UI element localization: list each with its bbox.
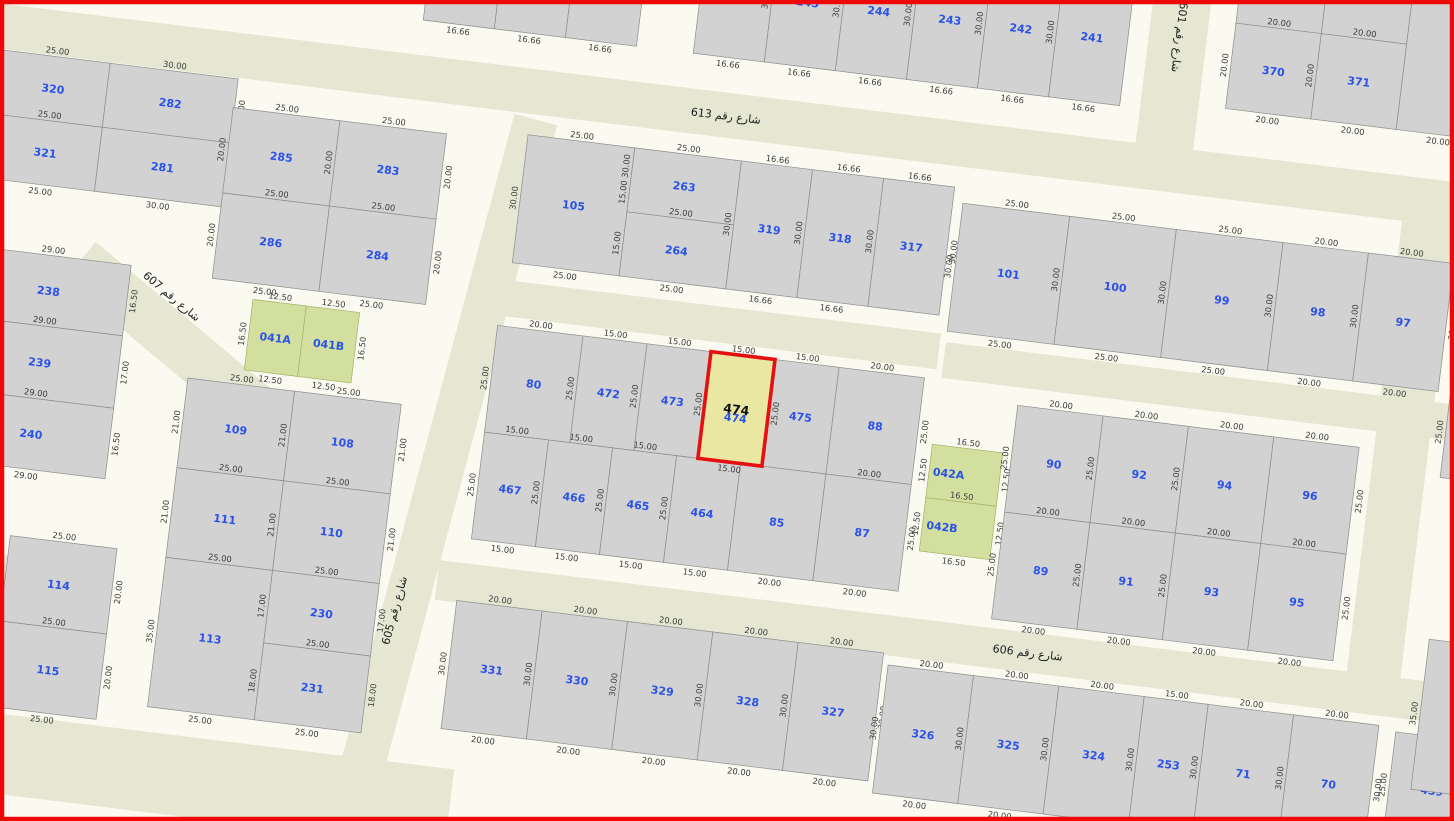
- parcel-number: 281: [150, 160, 174, 176]
- parcel-number: 71: [1235, 767, 1252, 782]
- parcel-number: 319: [757, 222, 781, 238]
- parcel-number: 113: [198, 631, 222, 647]
- parcel-number: 88: [867, 419, 884, 434]
- parcel-number: 92: [1131, 468, 1148, 483]
- parcel-number: 325: [996, 737, 1020, 753]
- parcel-number: 329: [650, 683, 674, 699]
- parcel-number: 253: [1156, 757, 1180, 773]
- parcel-number: 318: [828, 231, 852, 247]
- parcel-number: 98: [1309, 305, 1326, 320]
- parcel-number: 467: [498, 482, 522, 498]
- parcel-number: 239: [27, 355, 51, 371]
- parcel-map[interactable]: 32025.0015.0028230.0015.0032125.0025.001…: [0, 0, 1454, 821]
- parcel-number: 465: [626, 498, 650, 514]
- parcel-number: 87: [854, 526, 871, 541]
- parcel-number: 105: [561, 198, 585, 214]
- parcel-number: 283: [376, 163, 400, 179]
- parcel-number: 475: [788, 409, 812, 425]
- parcel-number: 317: [899, 239, 923, 255]
- parcel-number: 241: [1080, 30, 1104, 46]
- parcel-number: 472: [596, 386, 620, 402]
- parcel-number: 111: [212, 512, 236, 528]
- parcel-number: 95: [1288, 595, 1305, 610]
- parcel-number: 94: [1216, 478, 1233, 493]
- parcel-number: 242: [1009, 21, 1033, 37]
- parcel-number: 97: [1395, 315, 1412, 330]
- parcel-number: 99: [1213, 293, 1230, 308]
- parcel-71[interactable]: [1192, 704, 1293, 821]
- parcel-number: 101: [996, 266, 1020, 282]
- parcel-number: 328: [735, 694, 759, 710]
- parcel-number: 96: [1301, 489, 1318, 504]
- parcel-number: 473: [660, 394, 684, 410]
- parcel-number: 85: [768, 515, 785, 530]
- parcel-number: 263: [672, 179, 696, 195]
- selected-parcel-number: 474: [723, 400, 751, 418]
- parcel-number: 371: [1346, 74, 1370, 90]
- parcel-number: 91: [1118, 574, 1135, 589]
- parcel-number: 231: [300, 681, 324, 697]
- parcel-number: 80: [525, 377, 542, 392]
- parcel-number: 285: [269, 149, 293, 165]
- parcel-number: 90: [1045, 457, 1062, 472]
- parcel-70[interactable]: [1278, 715, 1379, 821]
- parcel-number: 115: [36, 663, 60, 679]
- parcel-number: 108: [330, 435, 354, 451]
- parcel-number: 331: [479, 662, 503, 678]
- parcel-number: 70: [1320, 777, 1337, 792]
- parcel-number: 89: [1032, 564, 1049, 579]
- parcel-number: 93: [1203, 585, 1220, 600]
- parcel-number: 321: [33, 145, 57, 161]
- parcel-number: 282: [158, 96, 182, 112]
- parcel-number: 243: [938, 12, 962, 28]
- parcel-number: 327: [821, 704, 845, 720]
- parcel-number: 109: [223, 422, 247, 438]
- parcel-number: 238: [36, 284, 60, 300]
